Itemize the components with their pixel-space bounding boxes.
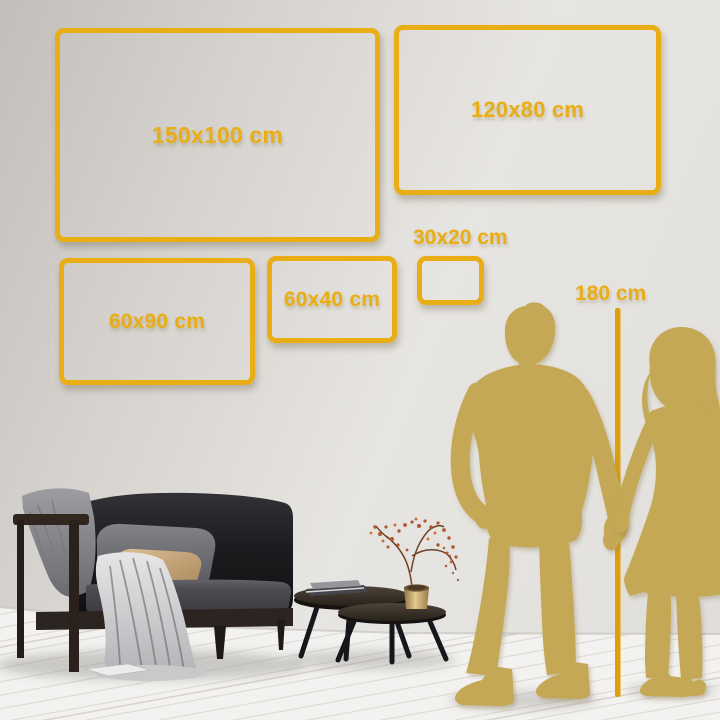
man-silhouette [455, 302, 631, 706]
brass-vase-with-dried-branch [370, 518, 458, 610]
size-label-30x20: 30x20 cm [413, 226, 508, 250]
sofa-wood-frame [13, 514, 293, 672]
size-frame-150x100: 150x100 cm [55, 28, 380, 242]
size-label-120x80: 120x80 cm [471, 97, 584, 123]
size-frame-60x40: 60x40 cm [267, 256, 397, 343]
size-comparison-scene: 150x100 cm 120x80 cm 60x90 cm 60x40 cm 3… [0, 0, 720, 720]
size-frame-60x90: 60x90 cm [59, 258, 255, 385]
plank-floor [0, 478, 720, 720]
white-draped-blanket [96, 552, 197, 678]
book-on-floor [86, 664, 150, 676]
nesting-coffee-tables [294, 518, 459, 663]
height-reference-line [615, 308, 621, 697]
size-label-150x100: 150x100 cm [152, 122, 283, 149]
tan-pillow [117, 549, 202, 590]
fallen-leaves [443, 547, 459, 582]
gray-throw-blanket [22, 488, 96, 597]
size-frame-120x80: 120x80 cm [394, 25, 661, 195]
sofa-back-shell [68, 493, 293, 618]
size-label-60x40: 60x40 cm [284, 288, 380, 312]
wingback-sofa [13, 488, 293, 681]
seat-cushion [86, 580, 291, 618]
woman-hair [649, 327, 720, 475]
stacked-books [306, 580, 368, 596]
woman-silhouette [613, 327, 720, 697]
floor-shadows [0, 650, 718, 709]
gray-pillow [97, 524, 216, 590]
height-reference-label: 180 cm [575, 282, 646, 306]
size-frame-30x20 [417, 256, 484, 305]
woman-dress [624, 405, 720, 597]
size-label-60x90: 60x90 cm [109, 310, 205, 334]
